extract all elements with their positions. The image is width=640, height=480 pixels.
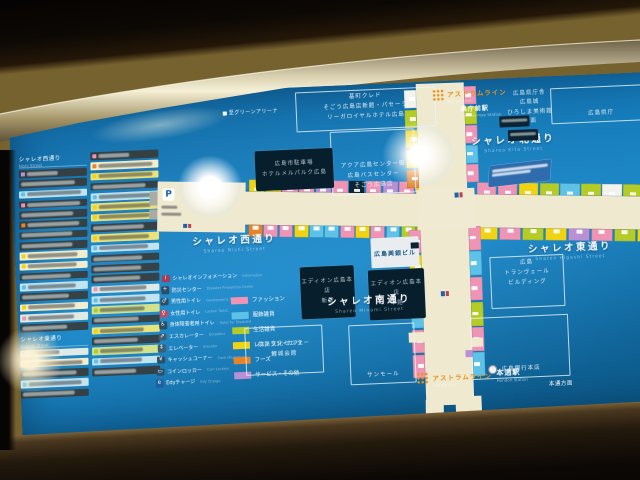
facility-label-en: Disaster Prevention Center xyxy=(207,285,254,291)
category-item: ファッション xyxy=(231,293,302,304)
astram-line-marker-south: アストラムライン Astram Line xyxy=(432,370,492,388)
astram-line-icon xyxy=(416,372,429,385)
facility-icon: ▭ xyxy=(156,368,164,376)
facility-label-jp: エレベーター xyxy=(168,344,198,352)
stairs-block xyxy=(149,209,157,219)
station-name-jp: 県庁前駅 xyxy=(461,102,502,113)
toilet-icons xyxy=(441,291,449,296)
directory-row xyxy=(21,358,89,369)
illegible-navy-tag xyxy=(499,115,529,127)
building-bunka-center: 県民文化センター 鯉城会館 xyxy=(244,325,324,376)
store-block-skyblue xyxy=(560,183,580,195)
building-aqua-bus-center-sogo: アクア広島センター街 広島バスセンター そごう広島店 xyxy=(330,128,417,196)
directory-row xyxy=(19,219,87,230)
directory-row xyxy=(92,294,160,305)
street-label-west: シャレオ西通り Shareo Nishi Street xyxy=(174,226,295,256)
directory-row xyxy=(92,355,160,366)
service-block xyxy=(465,350,472,357)
store-number-chip xyxy=(418,364,424,368)
illegible-store-name xyxy=(22,242,73,248)
directory-row xyxy=(20,260,88,271)
directory-row xyxy=(91,283,159,294)
store-block-pink xyxy=(371,226,385,238)
illegible-text xyxy=(161,206,177,209)
directory-row xyxy=(19,178,87,189)
category-chip xyxy=(22,316,26,320)
directory-row xyxy=(20,301,88,312)
illegible-store-name xyxy=(98,162,152,168)
illegible-store-name xyxy=(99,286,146,292)
store-block-green xyxy=(623,184,640,196)
store-number-chip xyxy=(567,191,573,195)
hondori-station-label: 本通駅 Hondori Station xyxy=(496,367,528,383)
store-number-chip xyxy=(360,227,366,231)
illegible-store-name xyxy=(21,211,73,217)
store-number-chip xyxy=(298,226,304,230)
category-chip xyxy=(93,236,97,240)
astram-line-icon xyxy=(432,89,445,102)
parking-icon: P xyxy=(162,189,174,201)
illegible-store-name xyxy=(21,232,72,238)
directory-row xyxy=(19,229,87,240)
directory-row xyxy=(19,168,87,179)
directory-row xyxy=(90,170,158,181)
illegible-store-name xyxy=(100,296,146,302)
illegible-store-name xyxy=(99,193,151,199)
directory-row xyxy=(92,335,160,346)
directory-column xyxy=(90,149,160,378)
street-label-east: シャレオ東通り Shareo Higashi Street xyxy=(515,233,626,263)
illegible-text xyxy=(501,118,527,122)
store-block-pink xyxy=(466,164,479,182)
illegible-navy-tag xyxy=(508,129,538,141)
illegible-store-name xyxy=(27,201,80,207)
illegible-store-name xyxy=(29,380,82,386)
store-number-chip xyxy=(470,236,476,240)
store-block-pink xyxy=(470,276,483,300)
illegible-store-name xyxy=(28,350,59,355)
directory-row xyxy=(91,252,159,263)
directory-row xyxy=(91,242,159,253)
illegible-store-name xyxy=(27,190,81,196)
store-number-chip xyxy=(484,229,490,233)
illegible-store-name xyxy=(23,370,77,376)
facility-label-en: Edy Charge xyxy=(200,379,220,384)
category-chip xyxy=(94,308,98,312)
illegible-store-name xyxy=(28,304,75,310)
store-number-chip xyxy=(468,171,474,175)
category-label: ファッション xyxy=(252,294,285,303)
directory-row xyxy=(92,345,160,356)
store-number-chip xyxy=(553,229,559,233)
facility-label-jp: 男性用トイレ xyxy=(171,297,201,305)
category-label: 服飾雑貨 xyxy=(252,310,274,319)
category-chip xyxy=(22,254,26,258)
directory-row xyxy=(19,240,87,251)
edy-icon: e xyxy=(156,380,164,388)
category-chip xyxy=(21,193,25,197)
illegible-store-name xyxy=(23,391,75,397)
store-block-pink xyxy=(468,226,481,250)
facility-label-en: Information xyxy=(242,273,262,278)
facility-item: iシャレオインフォメーションInformation xyxy=(162,271,263,282)
street-name-jp: シャレオ南通り xyxy=(327,294,411,309)
store-block-pink xyxy=(340,226,354,238)
category-chip xyxy=(93,195,97,199)
illegible-store-name xyxy=(93,224,144,230)
illegible-store-name xyxy=(100,358,142,364)
store-number-chip xyxy=(344,227,350,231)
directory-row xyxy=(90,160,158,171)
facility-icon: i xyxy=(162,275,170,283)
store-number-chip xyxy=(530,229,536,233)
category-chip xyxy=(22,265,26,269)
illegible-store-name xyxy=(27,171,58,176)
store-number-chip xyxy=(484,190,490,194)
illegible-store-name xyxy=(98,153,129,158)
facility-icon: ¥ xyxy=(157,356,165,364)
illegible-store-name xyxy=(93,255,142,261)
illegible-store-name xyxy=(22,294,69,300)
store-number-chip xyxy=(630,192,636,196)
store-number-chip xyxy=(314,226,320,230)
directory-row xyxy=(91,263,159,274)
facility-label-jp: キャッシュコーナー xyxy=(167,354,212,363)
directory-row xyxy=(19,209,87,220)
illegible-store-name xyxy=(99,244,148,250)
illegible-store-name xyxy=(93,183,146,189)
directory-row xyxy=(91,222,159,233)
illegible-store-name xyxy=(28,283,76,289)
building-motomachi-credo: 基町クレド そごう広島店新館・パセーラ リーガロイヤルホテル広島 xyxy=(295,86,437,132)
category-chip xyxy=(94,360,98,364)
facility-label-en: Ladies' Toilet xyxy=(205,309,228,314)
directory-row xyxy=(21,388,89,399)
category-chip xyxy=(23,383,27,387)
facility-label-jp: コインロッカー xyxy=(167,367,202,376)
category-item: 服飾雑貨 xyxy=(231,308,302,319)
store-number-chip xyxy=(599,230,605,234)
store-number-chip xyxy=(329,227,335,231)
directory-row xyxy=(20,281,88,292)
store-number-chip xyxy=(505,190,511,194)
category-chip xyxy=(21,224,25,228)
category-swatch xyxy=(231,311,248,319)
category-chip xyxy=(93,216,97,220)
directory-row xyxy=(92,304,160,315)
category-chip xyxy=(94,329,98,333)
station-name-jp: 本通駅 xyxy=(496,367,528,378)
facility-icon: ♂ xyxy=(160,298,168,306)
illegible-text xyxy=(161,213,181,216)
illegible-store-name xyxy=(29,360,83,366)
facility-icon: + xyxy=(161,287,169,295)
facility-label-jp: エスカレーター xyxy=(169,332,204,341)
facility-label-en: Coin Lockers xyxy=(207,367,229,372)
facility-icon: ⇕ xyxy=(158,345,166,353)
facility-label-jp: 身体障害者用トイレ xyxy=(170,320,215,329)
dark-kiosk-block xyxy=(411,242,419,248)
store-number-chip xyxy=(472,312,478,316)
map-board: シャレオ西通りNishi Streetシャレオ東通りHigashi Street… xyxy=(8,70,640,436)
illegible-store-name xyxy=(99,172,153,178)
illegible-store-name xyxy=(94,337,138,343)
directory-row xyxy=(92,314,160,325)
kencho-mae-station-label: 県庁前駅 Kencho-mae Station xyxy=(461,102,502,118)
illegible-store-name xyxy=(99,203,151,209)
category-chip xyxy=(94,349,98,353)
store-number-chip xyxy=(471,261,477,265)
directory-row xyxy=(92,324,160,335)
store-block-yellow xyxy=(356,226,370,238)
store-block-green xyxy=(581,184,601,196)
facility-item: +防災センターDisaster Prevention Center xyxy=(161,283,262,294)
store-number-chip xyxy=(320,188,326,192)
illegible-store-name xyxy=(94,368,136,374)
illegible-store-name xyxy=(93,265,141,271)
facility-icon: ♿ xyxy=(159,321,167,329)
directory-row xyxy=(21,368,89,379)
facility-icon: ♀ xyxy=(160,310,168,318)
illegible-store-name xyxy=(21,180,75,186)
facility-label-jp: 女性用トイレ xyxy=(170,309,200,317)
store-number-chip xyxy=(375,227,381,231)
store-number-chip xyxy=(609,192,615,196)
store-number-chip xyxy=(390,227,396,231)
category-swatch xyxy=(231,296,248,304)
store-number-chip xyxy=(546,191,552,195)
illegible-store-name xyxy=(22,325,67,331)
store-number-chip xyxy=(471,286,477,290)
illegible-store-name xyxy=(100,306,145,312)
store-block-yellow xyxy=(519,183,539,195)
directory-row xyxy=(19,198,87,209)
central-crossing-plaza xyxy=(416,188,476,230)
category-chip xyxy=(92,154,96,158)
category-chip xyxy=(94,298,98,302)
store-number-chip xyxy=(576,230,582,234)
building-city-parking-mielparque: 広島市駐車場 ホテルメルパルク広島 xyxy=(254,148,334,191)
illegible-store-name xyxy=(99,234,149,240)
directory-section-header: シャレオ東通りHigashi Street xyxy=(20,332,88,348)
illegible-store-name xyxy=(28,252,78,258)
category-chip xyxy=(21,172,25,176)
toilet-icons xyxy=(454,192,462,197)
green-arena-direction: 至グリーンアリーナ xyxy=(223,107,279,116)
facility-label-en: Escalator xyxy=(209,332,225,337)
exit-icon xyxy=(223,111,227,115)
illegible-store-name xyxy=(27,221,79,227)
facility-label-en: Elevator xyxy=(203,344,218,349)
category-chip xyxy=(23,362,27,366)
category-chip xyxy=(93,247,97,251)
store-block-skyblue xyxy=(325,226,339,238)
store-block-skyblue xyxy=(469,251,482,275)
directory-row xyxy=(20,322,88,333)
illegible-store-name xyxy=(28,314,74,320)
photo-of-underground-mall-directory-sign: シャレオ西通りNishi Streetシャレオ東通りHigashi Street… xyxy=(0,0,640,480)
directory-row xyxy=(91,273,159,284)
category-chip xyxy=(93,288,97,292)
store-block-skyblue xyxy=(310,225,324,237)
category-chip xyxy=(21,203,25,207)
directory-row xyxy=(20,312,88,323)
category-chip xyxy=(22,352,26,356)
illegible-store-name xyxy=(100,347,143,353)
illegible-store-name xyxy=(100,327,144,333)
left-shadow xyxy=(0,150,16,450)
illegible-text xyxy=(510,132,536,136)
directory-section-header: シャレオ西通りNishi Street xyxy=(19,153,87,169)
illegible-store-name xyxy=(93,276,140,282)
category-chip xyxy=(92,164,96,168)
street-name-jp: シャレオ東通り xyxy=(528,241,612,256)
west-plaza: P xyxy=(157,182,246,233)
directory-row xyxy=(92,366,160,377)
store-number-chip xyxy=(588,191,594,195)
directory-row xyxy=(91,180,159,191)
directory-row xyxy=(20,347,88,358)
illegible-store-name xyxy=(22,273,71,279)
directory-column: シャレオ西通りNishi Streetシャレオ東通りHigashi Street xyxy=(19,153,89,402)
building-sunmall: サンモール xyxy=(348,322,417,385)
facility-label-jp: 防災センター xyxy=(172,285,202,293)
store-block-white xyxy=(602,184,622,196)
category-chip xyxy=(22,285,26,289)
facility-label-jp: Edyチャージ xyxy=(166,378,195,386)
store-number-chip xyxy=(507,229,513,233)
building-kogin: 広島興銀ビル xyxy=(370,236,419,268)
illegible-store-name xyxy=(94,317,139,323)
category-chip xyxy=(93,205,97,209)
directory-row xyxy=(91,232,159,243)
illegible-store-name xyxy=(28,262,77,268)
directory-row xyxy=(21,378,89,389)
store-number-chip xyxy=(525,191,531,195)
street-name-jp: シャレオ西通り xyxy=(192,233,276,248)
store-block-yellow xyxy=(294,225,308,237)
facility-icon: ⇗ xyxy=(158,333,166,341)
directory-row xyxy=(20,270,88,281)
directory-row xyxy=(20,250,88,261)
store-block-green xyxy=(540,183,560,195)
illegible-store-name xyxy=(99,213,150,219)
directory-row xyxy=(19,188,87,199)
stairs-block xyxy=(149,191,157,205)
directory-row xyxy=(20,291,88,302)
category-chip xyxy=(93,175,97,179)
street-label-south: シャレオ南通り Shareo Minami Street xyxy=(309,286,430,316)
direction-text: 本通方面 xyxy=(549,379,573,388)
hondori-direction-label: 本通方面 xyxy=(549,379,573,388)
toilet-icons xyxy=(183,223,191,228)
directory-row xyxy=(90,149,158,160)
green-arena-label: 至グリーンアリーナ xyxy=(229,107,279,116)
facility-label-jp: シャレオインフォメーション xyxy=(172,272,237,282)
category-chip xyxy=(22,306,26,310)
